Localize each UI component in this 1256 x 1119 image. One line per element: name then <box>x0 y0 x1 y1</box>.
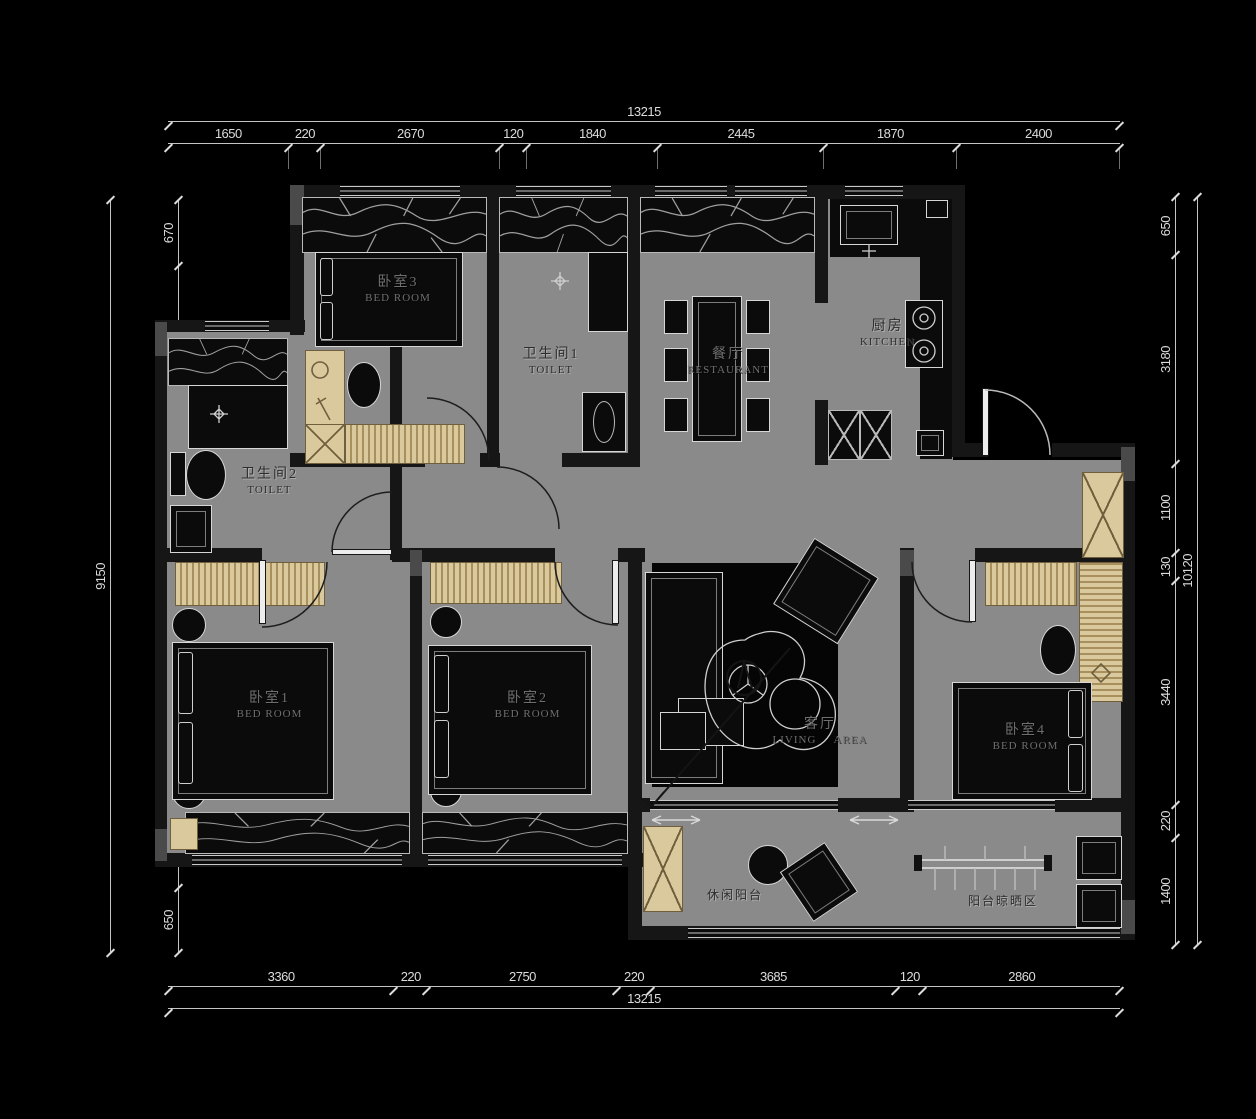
wall-bedroom2-living <box>628 548 642 798</box>
wall-balcony-top-a <box>628 798 650 812</box>
dim-value: 1650 <box>215 126 242 141</box>
dim-segment: 220 <box>617 969 650 986</box>
dining-chair <box>746 348 770 382</box>
bay-window-hatch <box>302 197 487 253</box>
balcony-table <box>748 845 788 885</box>
dim-value: 120 <box>503 126 523 141</box>
dim-value: 2860 <box>1008 969 1035 984</box>
dim-value: 10120 <box>1180 554 1195 588</box>
dining-chair <box>664 348 688 382</box>
wardrobe <box>1079 562 1123 702</box>
dim-segment: 1870 <box>824 126 957 143</box>
cabinet <box>305 424 345 464</box>
wardrobe <box>175 562 325 606</box>
wall-bedroom1-bedroom2 <box>410 548 422 867</box>
wall-living-bedroom4 <box>900 548 914 812</box>
window-dining-a <box>655 186 727 196</box>
dim-right-total: 10120 <box>1171 197 1198 945</box>
vent-box <box>926 200 948 218</box>
wall-balcony-top-b <box>838 798 908 812</box>
bay-window-hatch <box>422 812 628 854</box>
marble-pattern <box>641 198 814 252</box>
mattress-outline <box>321 258 457 341</box>
pillow <box>320 302 333 340</box>
window-bedroom3 <box>340 186 460 196</box>
dim-segment: 2445 <box>658 126 824 143</box>
dim-segment: 220 <box>289 126 322 143</box>
mattress-outline <box>434 651 586 789</box>
dim-segment: 3180 <box>1117 255 1175 464</box>
washer <box>1076 884 1122 928</box>
door-arc-entry <box>985 390 1050 455</box>
dim-bottom-segments: 3360 220 2750 220 3685 120 2860 <box>168 968 1120 987</box>
dim-segment: 3685 <box>651 969 896 986</box>
fridge <box>828 410 860 460</box>
dim-segment: 650 <box>120 888 178 953</box>
headboard-cabinet <box>985 562 1077 606</box>
dim-segment: 1840 <box>527 126 658 143</box>
toilet2-door-leaf <box>332 549 392 555</box>
mattress-outline <box>178 648 328 794</box>
wall-dining-kitchen-lower <box>815 400 828 465</box>
window-bay-bedroom1 <box>192 855 402 865</box>
marble-pattern <box>423 813 627 853</box>
wall-bedroom3-toilet1 <box>487 185 499 465</box>
dim-segment: 2670 <box>321 126 499 143</box>
wall-kitchen-right <box>950 185 965 457</box>
dining-table <box>692 296 742 442</box>
dim-segment: 220 <box>394 969 427 986</box>
dim-left-total: 9150 <box>84 200 111 953</box>
dim-segment: 650 <box>1117 197 1175 255</box>
pillow <box>320 258 333 296</box>
dim-bottom-total: 13215 <box>168 990 1120 1009</box>
window-sliding-bedroom4 <box>908 800 1055 810</box>
fridge <box>860 410 892 460</box>
bay-window-hatch <box>185 812 410 854</box>
small-appliance <box>916 430 944 456</box>
dim-segment: 670 <box>120 200 178 266</box>
dim-value: 2400 <box>1025 126 1052 141</box>
kitchen-sink <box>840 205 898 245</box>
wall-pier <box>1121 900 1135 934</box>
dim-segment: 10120 <box>1171 197 1197 945</box>
dim-value: 1840 <box>579 126 606 141</box>
dining-chair <box>664 300 688 334</box>
chair <box>347 362 381 408</box>
dim-value: 3360 <box>268 969 295 984</box>
window-sliding-living <box>650 800 838 810</box>
wall-outer-left <box>155 320 167 867</box>
dim-segment: 13215 <box>168 104 1120 121</box>
dim-value: 2670 <box>397 126 424 141</box>
dim-value: 2445 <box>728 126 755 141</box>
toilet-bowl <box>593 401 615 443</box>
wall-pier <box>155 322 167 356</box>
window-balcony-rail <box>688 928 1120 938</box>
dim-value: 3685 <box>760 969 787 984</box>
pillow <box>178 652 193 714</box>
dining-chair <box>746 300 770 334</box>
bathroom-sink <box>170 505 212 553</box>
bay-window-hatch <box>168 338 288 386</box>
wall-pier <box>410 550 422 576</box>
wall-pier <box>900 550 914 576</box>
dim-segment: 2860 <box>923 969 1120 986</box>
washer-door <box>1082 842 1116 874</box>
window-bay-bedroom2 <box>428 855 622 865</box>
sofa <box>645 572 723 784</box>
appliance-outline <box>921 435 939 451</box>
bay-window-hatch <box>499 197 628 253</box>
dim-value: 2750 <box>509 969 536 984</box>
washer <box>1076 836 1122 880</box>
dim-top-segments: 1650 220 2670 120 1840 2445 1870 2400 <box>168 125 1120 144</box>
entry-door-leaf <box>982 388 989 456</box>
dining-chair <box>664 398 688 432</box>
wardrobe <box>430 562 562 604</box>
bed <box>315 252 463 347</box>
wall-under-toilet1 <box>562 453 640 467</box>
floor-hallway <box>167 460 1123 560</box>
pillow <box>1068 744 1083 792</box>
dim-segment: 3360 <box>168 969 394 986</box>
side-table <box>660 712 706 750</box>
marble-pattern <box>500 198 627 252</box>
wall-balcony-top-c <box>1055 798 1123 812</box>
sink-basin <box>846 211 892 239</box>
wall-pier <box>155 829 167 861</box>
stove <box>905 300 943 368</box>
window-kitchen <box>845 186 903 196</box>
dim-value: 13215 <box>627 104 661 119</box>
bedroom2-door-leaf <box>612 560 619 624</box>
dim-value: 670 <box>161 223 176 243</box>
dim-value: 650 <box>161 910 176 930</box>
mattress-outline <box>958 688 1086 794</box>
wall-dining-kitchen-upper <box>815 185 828 303</box>
dim-value: 220 <box>401 969 421 984</box>
dim-top-total: 13215 <box>168 103 1120 122</box>
wall-balcony-left <box>628 798 642 940</box>
plant <box>172 608 206 642</box>
pillow <box>1068 690 1083 738</box>
bedroom1-door-leaf <box>259 560 266 624</box>
table-outline <box>698 302 736 436</box>
bed <box>172 642 334 800</box>
marble-pattern <box>169 339 287 379</box>
dim-value: 220 <box>295 126 315 141</box>
floor-plan-canvas: 13215 1650 220 2670 120 1840 2445 1870 2… <box>0 0 1256 1119</box>
shower-partition <box>588 252 628 332</box>
window-dining-b <box>735 186 807 196</box>
pillow <box>178 722 193 784</box>
marble-pattern <box>303 198 486 252</box>
wall-under-bedroom3-b <box>480 453 500 467</box>
floor-balcony <box>628 798 1123 928</box>
shoe-cabinet <box>1082 472 1124 558</box>
washer-door <box>1082 890 1116 922</box>
dim-value: 13215 <box>627 991 661 1006</box>
toilet-bowl <box>186 450 226 500</box>
dim-segment: 13215 <box>168 991 1120 1008</box>
wardrobe <box>345 424 465 464</box>
toilet-tank <box>170 452 186 496</box>
window-toilet1 <box>516 186 611 196</box>
wall-toilet1-dining <box>628 185 640 465</box>
dim-segment: 1650 <box>168 126 289 143</box>
dim-value: 120 <box>900 969 920 984</box>
dim-segment: 2750 <box>427 969 617 986</box>
dim-value: 1870 <box>877 126 904 141</box>
toilet-fixture <box>582 392 626 452</box>
dim-value: 220 <box>624 969 644 984</box>
bedroom4-door-leaf <box>969 560 976 622</box>
dim-value: 9150 <box>93 563 108 590</box>
pillow <box>434 720 449 778</box>
marble-pattern <box>186 813 409 853</box>
bed <box>428 645 592 795</box>
cabinet <box>170 818 198 850</box>
dim-segment: 9150 <box>84 200 110 953</box>
shower-area <box>188 385 288 449</box>
plant <box>430 606 462 638</box>
bay-window-hatch <box>640 197 815 253</box>
balcony-cabinet <box>643 826 683 912</box>
sink-basin <box>176 511 206 547</box>
window-toilet2 <box>205 321 269 331</box>
chair <box>1040 625 1076 675</box>
dining-chair <box>746 398 770 432</box>
pillow <box>434 655 449 713</box>
dim-segment: 2400 <box>957 126 1120 143</box>
dim-segment: 120 <box>500 126 527 143</box>
dim-segment: 120 <box>896 969 923 986</box>
